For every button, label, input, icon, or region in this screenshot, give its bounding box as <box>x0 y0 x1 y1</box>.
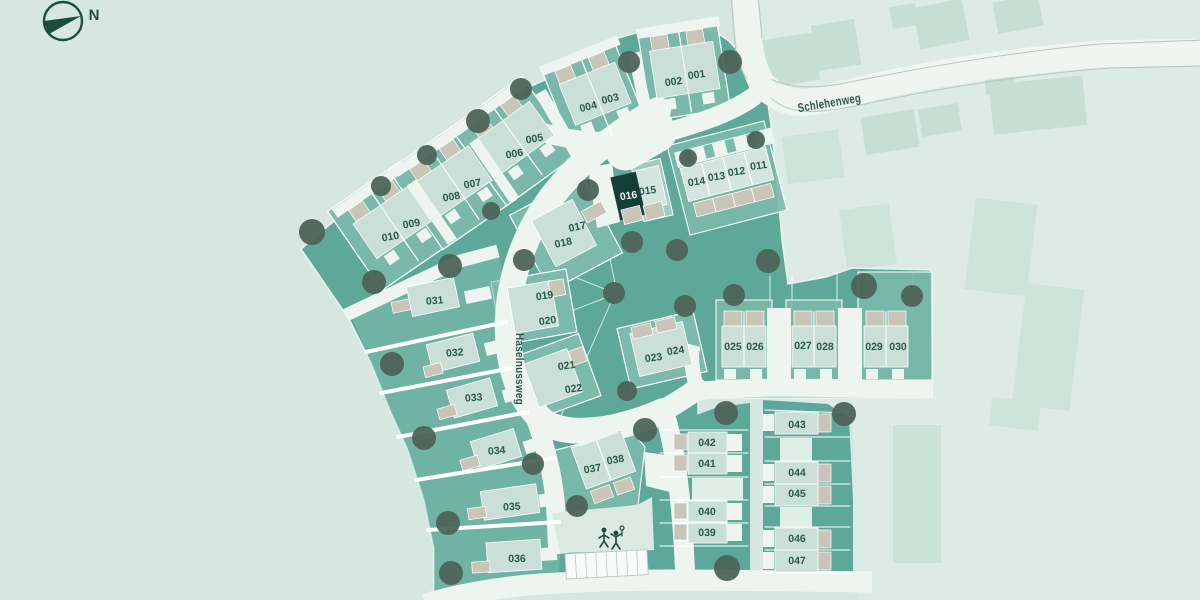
svg-text:034: 034 <box>487 444 506 457</box>
svg-text:033: 033 <box>464 391 483 404</box>
svg-text:001: 001 <box>687 68 706 82</box>
svg-text:027: 027 <box>794 340 812 352</box>
svg-text:039: 039 <box>698 527 716 539</box>
svg-text:002: 002 <box>664 75 683 89</box>
svg-text:036: 036 <box>508 553 526 565</box>
svg-text:019: 019 <box>535 289 554 303</box>
svg-text:025: 025 <box>724 341 742 353</box>
svg-text:015: 015 <box>638 184 657 198</box>
svg-text:014: 014 <box>687 175 706 189</box>
svg-text:030: 030 <box>889 341 907 353</box>
svg-text:044: 044 <box>788 467 806 479</box>
svg-text:013: 013 <box>707 170 726 184</box>
svg-text:045: 045 <box>788 488 806 500</box>
svg-text:029: 029 <box>865 341 883 353</box>
svg-text:N: N <box>89 7 100 24</box>
svg-text:016: 016 <box>619 189 638 203</box>
svg-text:035: 035 <box>503 501 521 514</box>
svg-text:024: 024 <box>666 344 685 358</box>
svg-text:041: 041 <box>698 458 716 470</box>
svg-text:012: 012 <box>727 165 746 179</box>
svg-text:026: 026 <box>746 341 764 353</box>
svg-text:032: 032 <box>445 346 464 359</box>
svg-text:031: 031 <box>425 294 444 307</box>
svg-text:Haselnussweg: Haselnussweg <box>513 333 525 405</box>
svg-text:040: 040 <box>698 506 716 518</box>
svg-text:020: 020 <box>538 314 557 328</box>
svg-text:028: 028 <box>816 341 834 353</box>
svg-text:021: 021 <box>557 359 576 373</box>
svg-text:011: 011 <box>749 159 768 173</box>
svg-text:046: 046 <box>788 533 806 545</box>
svg-text:023: 023 <box>644 351 663 365</box>
svg-text:022: 022 <box>564 382 583 396</box>
svg-text:047: 047 <box>788 555 806 567</box>
svg-text:043: 043 <box>788 419 806 431</box>
svg-text:042: 042 <box>698 437 716 449</box>
